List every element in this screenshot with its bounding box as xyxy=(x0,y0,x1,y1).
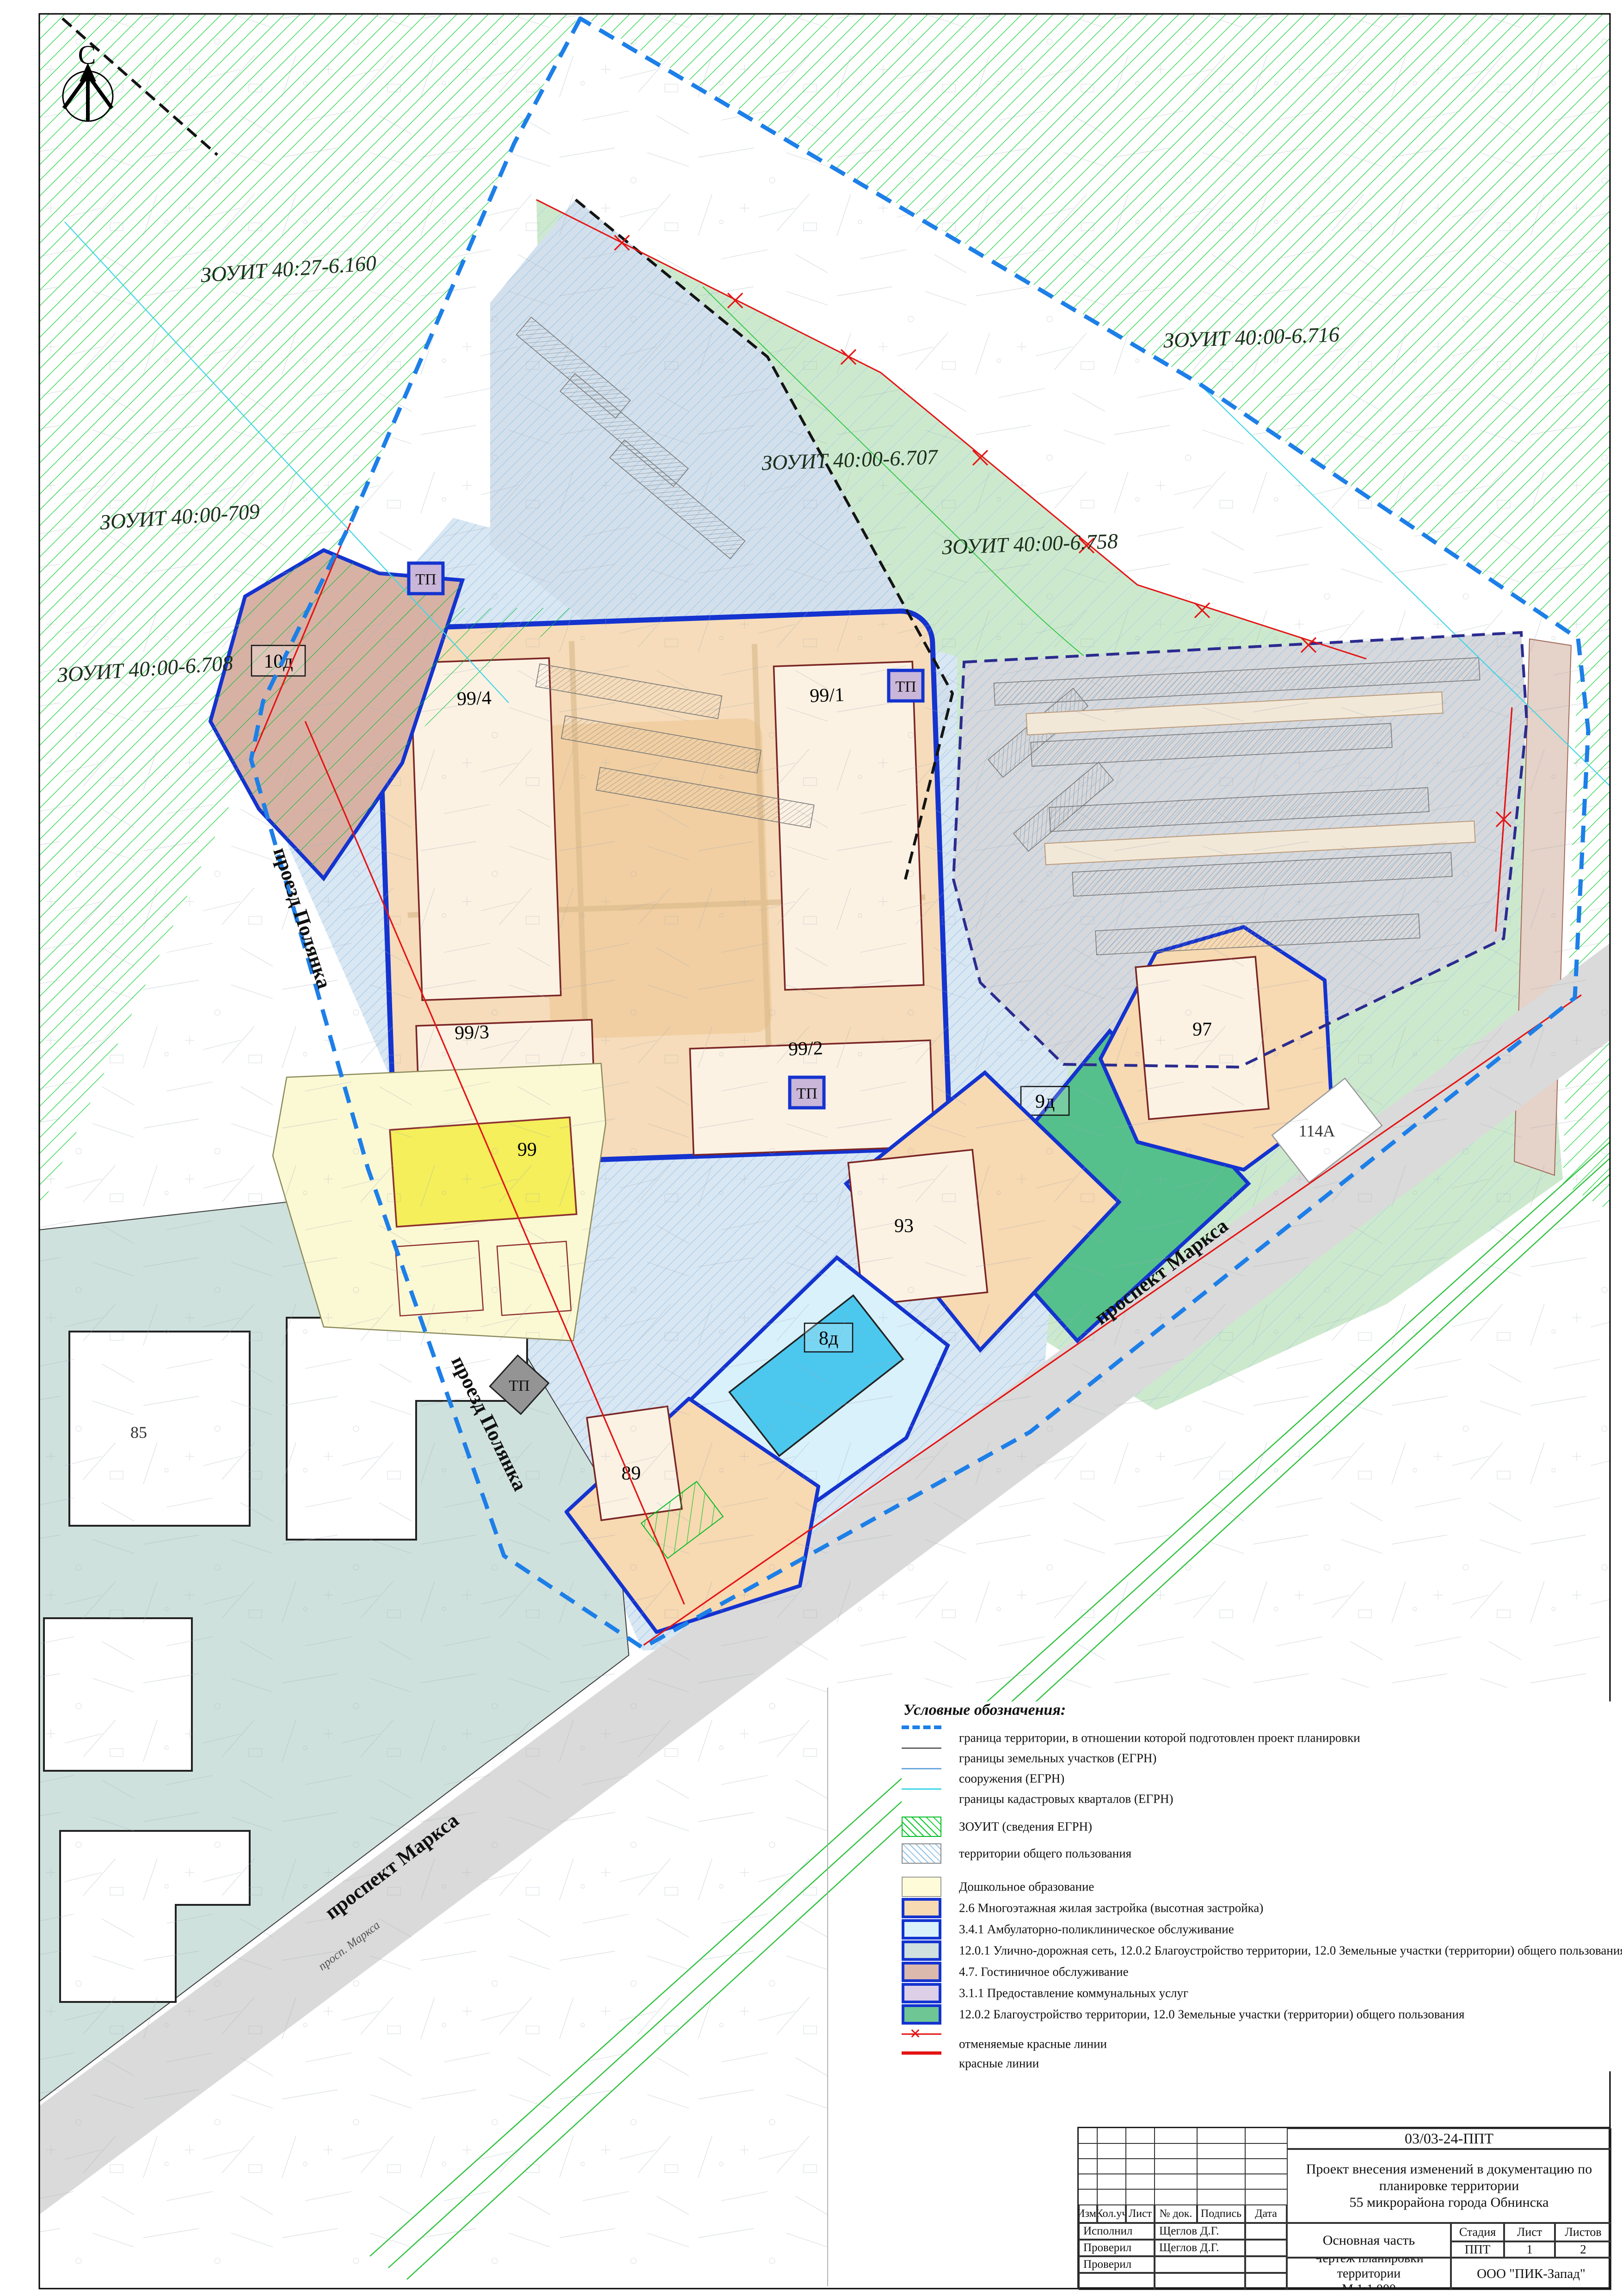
sheets-header: Листов xyxy=(1555,2223,1611,2241)
stage-value: ППТ xyxy=(1451,2241,1504,2258)
tp-label: ТП xyxy=(415,571,436,588)
drawing-name-line: Чертеж планировки территории xyxy=(1288,2258,1450,2282)
col-data: Дата xyxy=(1245,2204,1287,2223)
public-territory-swatch xyxy=(902,1843,941,1864)
row-proveril1-name: Щеглов Д.Г. xyxy=(1155,2240,1245,2256)
legend-label: 2.6 Многоэтажная жилая застройка (высотн… xyxy=(959,1901,1263,1915)
sheets-value: 2 xyxy=(1555,2241,1611,2258)
row-proveril2-label: Проверил xyxy=(1079,2256,1155,2273)
drawing-name: Чертеж планировки территории М 1:1 000 xyxy=(1287,2258,1451,2290)
tp-box: ТП xyxy=(790,1077,824,1108)
doc-code: 03/03-24-ППТ xyxy=(1287,2128,1611,2149)
row-ispolnil-name: Щеглов Д.Г. xyxy=(1155,2223,1245,2240)
legend-label: Дошкольное образование xyxy=(959,1880,1094,1894)
tp-label: ТП xyxy=(509,1377,529,1394)
col-dok: № док. xyxy=(1155,2204,1197,2223)
col-podpis: Подпись xyxy=(1197,2204,1245,2223)
utilities-swatch xyxy=(902,1983,941,2003)
planning-drawing-sheet: { "map": { "north": "С", "tp_label": "ТП… xyxy=(0,0,1622,2296)
polyclinic-swatch xyxy=(902,1919,941,1940)
zouit-hatch-swatch xyxy=(902,1817,941,1837)
sheet-value: 1 xyxy=(1504,2241,1555,2258)
drawing-scale: М 1:1 000 xyxy=(1342,2282,1396,2290)
project-title: Проект внесения изменений в документацию… xyxy=(1287,2149,1611,2223)
residential-swatch xyxy=(902,1898,941,1918)
legend-label: границы кадастровых кварталов (ЕГРН) xyxy=(959,1792,1173,1806)
row-ispolnil-label: Исполнил xyxy=(1079,2223,1155,2240)
legend-label: 12.0.1 Улично-дорожная сеть, 12.0.2 Благ… xyxy=(959,1944,1622,1958)
legend-label: 3.1.1 Предоставление коммунальных услуг xyxy=(959,1986,1188,2001)
hotel-swatch xyxy=(902,1962,941,1982)
legend: Условные обозначения: граница территории… xyxy=(902,1701,1611,2071)
part-name: Основная часть xyxy=(1287,2223,1451,2258)
stage-header: Стадия xyxy=(1451,2223,1504,2241)
legend-label: отменяемые красные линии xyxy=(959,2037,1107,2051)
kindergarten-swatch xyxy=(902,1877,941,1897)
row-proveril2-sign xyxy=(1245,2256,1287,2273)
project-title-line2: 55 микрорайона города Обнинска xyxy=(1350,2194,1549,2211)
legend-label: ЗОУИТ (сведения ЕГРН) xyxy=(959,1820,1092,1834)
legend-label: сооружения (ЕГРН) xyxy=(959,1772,1064,1786)
company-name: ООО "ПИК-Запад" xyxy=(1451,2258,1611,2290)
sheet-header: Лист xyxy=(1504,2223,1555,2241)
tp-label: ТП xyxy=(796,1085,817,1102)
legend-label: граница территории, в отношении которой … xyxy=(959,1731,1360,1745)
legend-label: территории общего пользования xyxy=(959,1847,1131,1861)
improvement-swatch xyxy=(902,2004,941,2025)
legend-label: 12.0.2 Благоустройство территории, 12.0 … xyxy=(959,2007,1464,2022)
tp-label: ТП xyxy=(895,678,916,695)
col-koluch: Кол.уч xyxy=(1097,2204,1126,2223)
row-empty-name xyxy=(1155,2273,1245,2290)
revision-grid-lines xyxy=(1079,2128,1287,2204)
row-proveril2-name xyxy=(1155,2256,1245,2273)
title-block: Изм. Кол.уч Лист № док. Подпись Дата Исп… xyxy=(1077,2127,1610,2289)
legend-label: границы земельных участков (ЕГРН) xyxy=(959,1751,1156,1766)
tp-box: ТП xyxy=(889,670,923,701)
row-empty-sign xyxy=(1245,2273,1287,2290)
revision-grid xyxy=(1079,2128,1287,2204)
legend-label: 4.7. Гостиничное обслуживание xyxy=(959,1965,1129,1979)
north-label: С xyxy=(78,40,96,70)
label-85: 85 xyxy=(130,1423,147,1442)
row-empty-label xyxy=(1079,2273,1155,2290)
project-title-line1: Проект внесения изменений в документацию… xyxy=(1294,2161,1604,2194)
row-ispolnil-sign xyxy=(1245,2223,1287,2240)
legend-label: 3.4.1 Амбулаторно-поликлиническое обслуж… xyxy=(959,1922,1234,1937)
col-list: Лист xyxy=(1126,2204,1155,2223)
tp-box: ТП xyxy=(409,563,443,594)
col-izm: Изм. xyxy=(1079,2204,1097,2223)
legend-label: красные линии xyxy=(959,2057,1039,2071)
street-network-swatch xyxy=(902,1940,941,1961)
row-proveril1-sign xyxy=(1245,2240,1287,2256)
topo-noise xyxy=(39,1688,828,2275)
legend-title: Условные обозначения: xyxy=(903,1701,1066,1719)
row-proveril1-label: Проверил xyxy=(1079,2240,1155,2256)
